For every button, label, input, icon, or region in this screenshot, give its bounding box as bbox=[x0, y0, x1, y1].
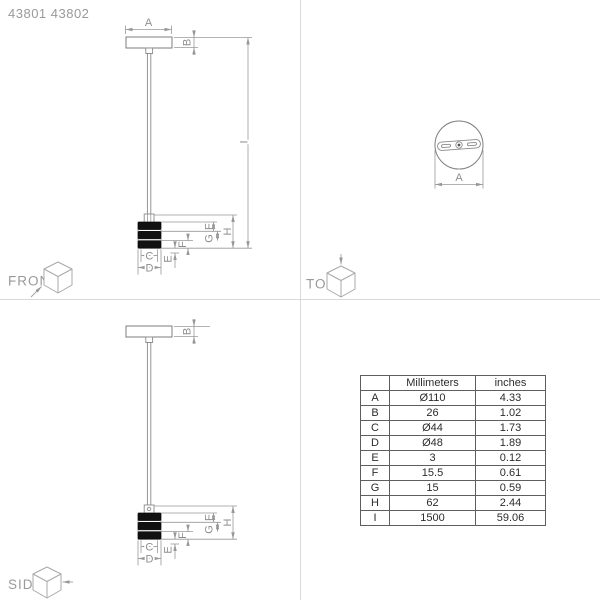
dim-g-side: G bbox=[203, 522, 217, 533]
dim-label-h: H bbox=[222, 518, 234, 526]
dim-g-front: G bbox=[203, 231, 217, 242]
dim-a-front: A bbox=[126, 17, 172, 34]
dim-label-a: A bbox=[145, 17, 153, 29]
table-row: G 15 0.59 bbox=[361, 481, 546, 496]
dim-letter-cell: D bbox=[361, 436, 390, 451]
dim-f-lower-side: F bbox=[177, 525, 189, 546]
inches-value-cell: 0.59 bbox=[476, 481, 546, 496]
dim-label-c: C bbox=[145, 250, 153, 262]
socket-nipple bbox=[144, 505, 154, 513]
ceiling-canopy bbox=[126, 37, 172, 48]
dim-label-f: F bbox=[177, 532, 189, 539]
inches-value-cell: 2.44 bbox=[476, 496, 546, 511]
dim-label-e: E bbox=[162, 255, 174, 262]
suspension-cable bbox=[147, 343, 150, 506]
dim-c-front: C bbox=[141, 249, 158, 262]
inches-value-cell: 0.12 bbox=[476, 451, 546, 466]
dim-letter-cell: G bbox=[361, 481, 390, 496]
table-row: F 15.5 0.61 bbox=[361, 466, 546, 481]
mm-value-cell: Ø48 bbox=[390, 436, 476, 451]
dim-label-f: F bbox=[203, 514, 215, 521]
dim-f-lower-front: F bbox=[177, 234, 189, 255]
cable-grip bbox=[146, 48, 153, 54]
set-screw bbox=[147, 507, 150, 510]
dim-letter-cell: F bbox=[361, 466, 390, 481]
dim-label-g: G bbox=[203, 525, 215, 534]
inches-value-cell: 4.33 bbox=[476, 391, 546, 406]
top-view-drawing: A TOP bbox=[300, 0, 600, 300]
mm-value-cell: 1500 bbox=[390, 511, 476, 526]
dimensions-table: Millimeters inches A Ø110 4.33 B 26 1.02… bbox=[360, 375, 546, 526]
table-row: I 1500 59.06 bbox=[361, 511, 546, 526]
dim-label-i: I bbox=[238, 140, 250, 143]
inches-value-cell: 1.89 bbox=[476, 436, 546, 451]
dim-b-side: B bbox=[174, 319, 210, 344]
dim-label-d: D bbox=[146, 262, 154, 274]
dim-label-b: B bbox=[181, 39, 193, 46]
mounting-slot-right bbox=[467, 142, 476, 145]
dim-label-c: C bbox=[145, 541, 153, 553]
dim-label-f: F bbox=[203, 223, 215, 230]
mm-value-cell: 3 bbox=[390, 451, 476, 466]
dim-c-side: C bbox=[141, 540, 158, 553]
side-view-cube-icon bbox=[33, 567, 61, 598]
inches-value-cell: 1.73 bbox=[476, 421, 546, 436]
mm-value-cell: 15 bbox=[390, 481, 476, 496]
dim-h-side: H bbox=[222, 506, 234, 539]
inches-value-cell: 0.61 bbox=[476, 466, 546, 481]
dim-label-f: F bbox=[177, 241, 189, 248]
dim-i-front: I bbox=[174, 38, 252, 249]
dim-label-h: H bbox=[222, 227, 234, 235]
lamp-head bbox=[138, 513, 161, 539]
table-row: B 26 1.02 bbox=[361, 406, 546, 421]
mm-value-cell: 15.5 bbox=[390, 466, 476, 481]
dim-letter-cell: I bbox=[361, 511, 390, 526]
dim-label-d: D bbox=[146, 553, 154, 565]
spec-sheet: 43801 43802 A bbox=[0, 0, 600, 600]
table-row: E 3 0.12 bbox=[361, 451, 546, 466]
dim-label-g: G bbox=[203, 234, 215, 243]
dim-letter-cell: H bbox=[361, 496, 390, 511]
front-view-drawing: 43801 43802 A bbox=[0, 0, 300, 300]
header-mm-cell: Millimeters bbox=[390, 376, 476, 391]
dim-letter-cell: C bbox=[361, 421, 390, 436]
header-inches-cell: inches bbox=[476, 376, 546, 391]
dim-label-a: A bbox=[455, 172, 463, 184]
dim-label-b: B bbox=[181, 328, 193, 335]
side-view-drawing: F G H F E C D bbox=[0, 300, 300, 600]
table-row: D Ø48 1.89 bbox=[361, 436, 546, 451]
mm-value-cell: 62 bbox=[390, 496, 476, 511]
mounting-slot-left bbox=[441, 144, 450, 147]
cable-grip bbox=[146, 337, 153, 343]
dim-f-upper-front: F bbox=[203, 222, 215, 231]
table-row: A Ø110 4.33 bbox=[361, 391, 546, 406]
mm-value-cell: Ø110 bbox=[390, 391, 476, 406]
dim-label-e: E bbox=[162, 546, 174, 553]
inches-value-cell: 1.02 bbox=[476, 406, 546, 421]
socket-nipple bbox=[144, 214, 154, 222]
dim-f-upper-side: F bbox=[203, 513, 215, 522]
dim-h-front: H bbox=[222, 215, 234, 248]
top-view-cube-icon bbox=[327, 266, 355, 297]
inches-value-cell: 59.06 bbox=[476, 511, 546, 526]
ceiling-canopy bbox=[126, 326, 172, 337]
header-dim-cell bbox=[361, 376, 390, 391]
suspension-cable bbox=[147, 54, 150, 215]
dim-letter-cell: B bbox=[361, 406, 390, 421]
lamp-head bbox=[138, 222, 161, 248]
table-row: C Ø44 1.73 bbox=[361, 421, 546, 436]
dim-letter-cell: A bbox=[361, 391, 390, 406]
table-header-row: Millimeters inches bbox=[361, 376, 546, 391]
dim-letter-cell: E bbox=[361, 451, 390, 466]
mm-value-cell: 26 bbox=[390, 406, 476, 421]
product-code: 43801 43802 bbox=[8, 6, 89, 21]
mm-value-cell: Ø44 bbox=[390, 421, 476, 436]
table-row: H 62 2.44 bbox=[361, 496, 546, 511]
dim-b-front: B bbox=[174, 30, 198, 55]
